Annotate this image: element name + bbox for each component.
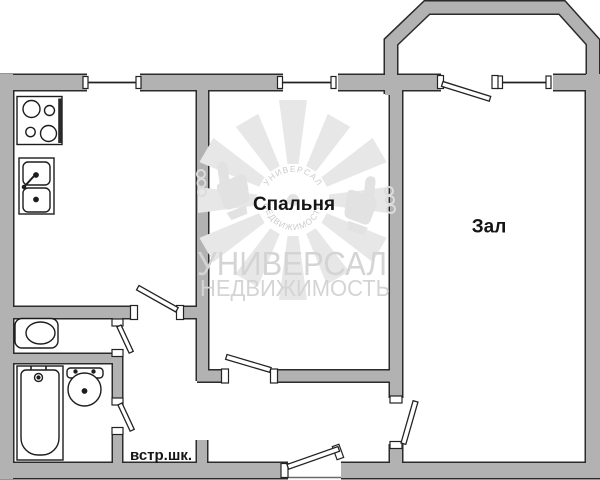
hall-label: Зал xyxy=(472,217,507,238)
floorplan-svg: УНИВЕРСАЛ НЕДВИЖИМОСТЬ УНИВЕРСАЛ НЕДВИЖИ… xyxy=(0,0,600,480)
bedroom-label: Спальня xyxy=(253,194,335,215)
closet-label: встр.шк. xyxy=(130,447,192,464)
stove-icon xyxy=(17,97,62,145)
bathtub-icon xyxy=(17,366,63,460)
watermark-brand-line2: НЕДВИЖИМОСТЬ xyxy=(200,275,390,301)
plan-background xyxy=(0,0,600,480)
washbasin-icon xyxy=(67,368,103,406)
toilet-icon xyxy=(15,319,58,349)
kitchen-sink-icon xyxy=(19,158,54,214)
floorplan-page: УНИВЕРСАЛ НЕДВИЖИМОСТЬ УНИВЕРСАЛ НЕДВИЖИ… xyxy=(0,0,600,480)
